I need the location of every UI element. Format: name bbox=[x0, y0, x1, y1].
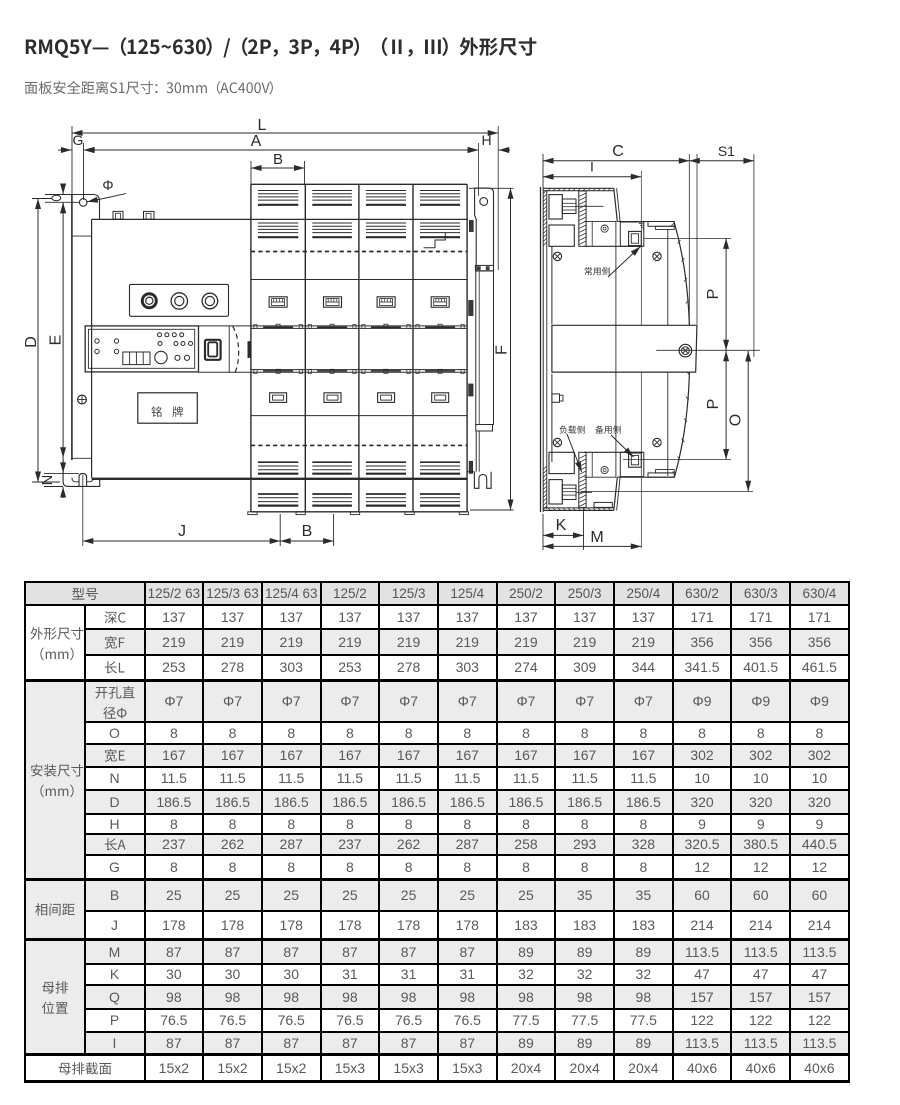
svg-text:J: J bbox=[178, 523, 186, 540]
svg-text:M: M bbox=[590, 529, 603, 546]
svg-text:C: C bbox=[612, 143, 624, 160]
svg-text:S1: S1 bbox=[718, 143, 735, 159]
svg-text:F: F bbox=[494, 345, 511, 355]
svg-text:K: K bbox=[556, 517, 567, 534]
svg-text:N: N bbox=[40, 475, 56, 485]
svg-text:A: A bbox=[251, 133, 262, 150]
svg-text:P: P bbox=[705, 399, 722, 410]
svg-text:B: B bbox=[273, 151, 283, 168]
svg-text:B: B bbox=[302, 523, 313, 540]
svg-text:O: O bbox=[728, 414, 745, 426]
svg-text:L: L bbox=[258, 117, 267, 134]
svg-text:I: I bbox=[590, 159, 594, 175]
svg-text:G: G bbox=[73, 132, 84, 148]
svg-text:E: E bbox=[47, 335, 64, 346]
svg-text:Φ: Φ bbox=[102, 177, 113, 193]
svg-text:H: H bbox=[481, 132, 491, 148]
svg-text:P: P bbox=[705, 289, 722, 300]
svg-text:D: D bbox=[23, 336, 40, 348]
